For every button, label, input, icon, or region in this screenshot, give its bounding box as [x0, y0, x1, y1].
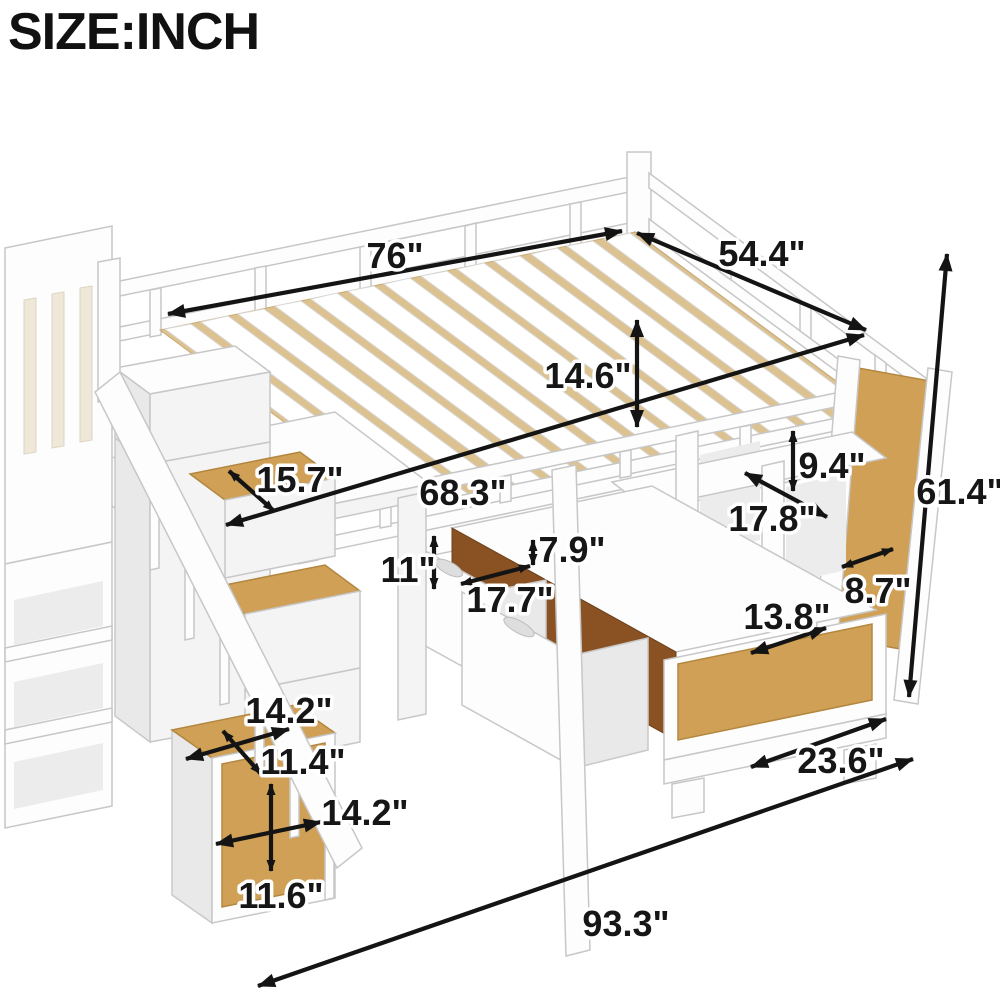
dim-label-underbed-length: 68.3" [419, 472, 506, 513]
dim-label-cubby-width: 17.8" [728, 498, 815, 539]
dim-label-overall-height: 61.4" [916, 471, 1000, 512]
side-shelf-tower [5, 226, 112, 828]
dim-label-rail-height: 14.6" [544, 355, 631, 396]
dim-label-step-front-height: 11.6" [238, 875, 323, 916]
dim-label-panel-width: 13.8" [743, 596, 830, 637]
dim-label-drawer-height: 11" [380, 549, 435, 590]
dim-label-bed-width: 54.4" [718, 233, 805, 274]
dim-label-drawer-gap: 7.9" [538, 529, 605, 570]
drawer-side [575, 638, 648, 768]
dim-label-step-front-width: 14.2" [321, 792, 408, 833]
dim-label-drawer-depth: 17.7" [466, 579, 553, 620]
dim-label-bed-length: 76" [366, 235, 423, 276]
rail-post [620, 450, 631, 478]
product-diagram: 76" 54.4" 14.6" 61.4" 15.7" 68.3" 11" 7.… [0, 0, 1000, 1000]
diagram-page: SIZE:INCH [0, 0, 1000, 1000]
desk-support [398, 492, 426, 720]
dim-label-cubby-height: 9.4" [798, 445, 865, 486]
dim-label-step-top-depth: 11.4" [260, 741, 345, 782]
panel-slot [80, 286, 92, 442]
dim-label-side-depth: 8.7" [844, 570, 911, 611]
panel-slot [24, 298, 36, 454]
base-foot [672, 778, 704, 818]
loft-bed-illustration [5, 152, 952, 956]
dim-label-step-top-width: 14.2" [245, 690, 332, 731]
panel-slot [52, 292, 64, 448]
dim-label-overall-length: 93.3" [582, 903, 669, 944]
